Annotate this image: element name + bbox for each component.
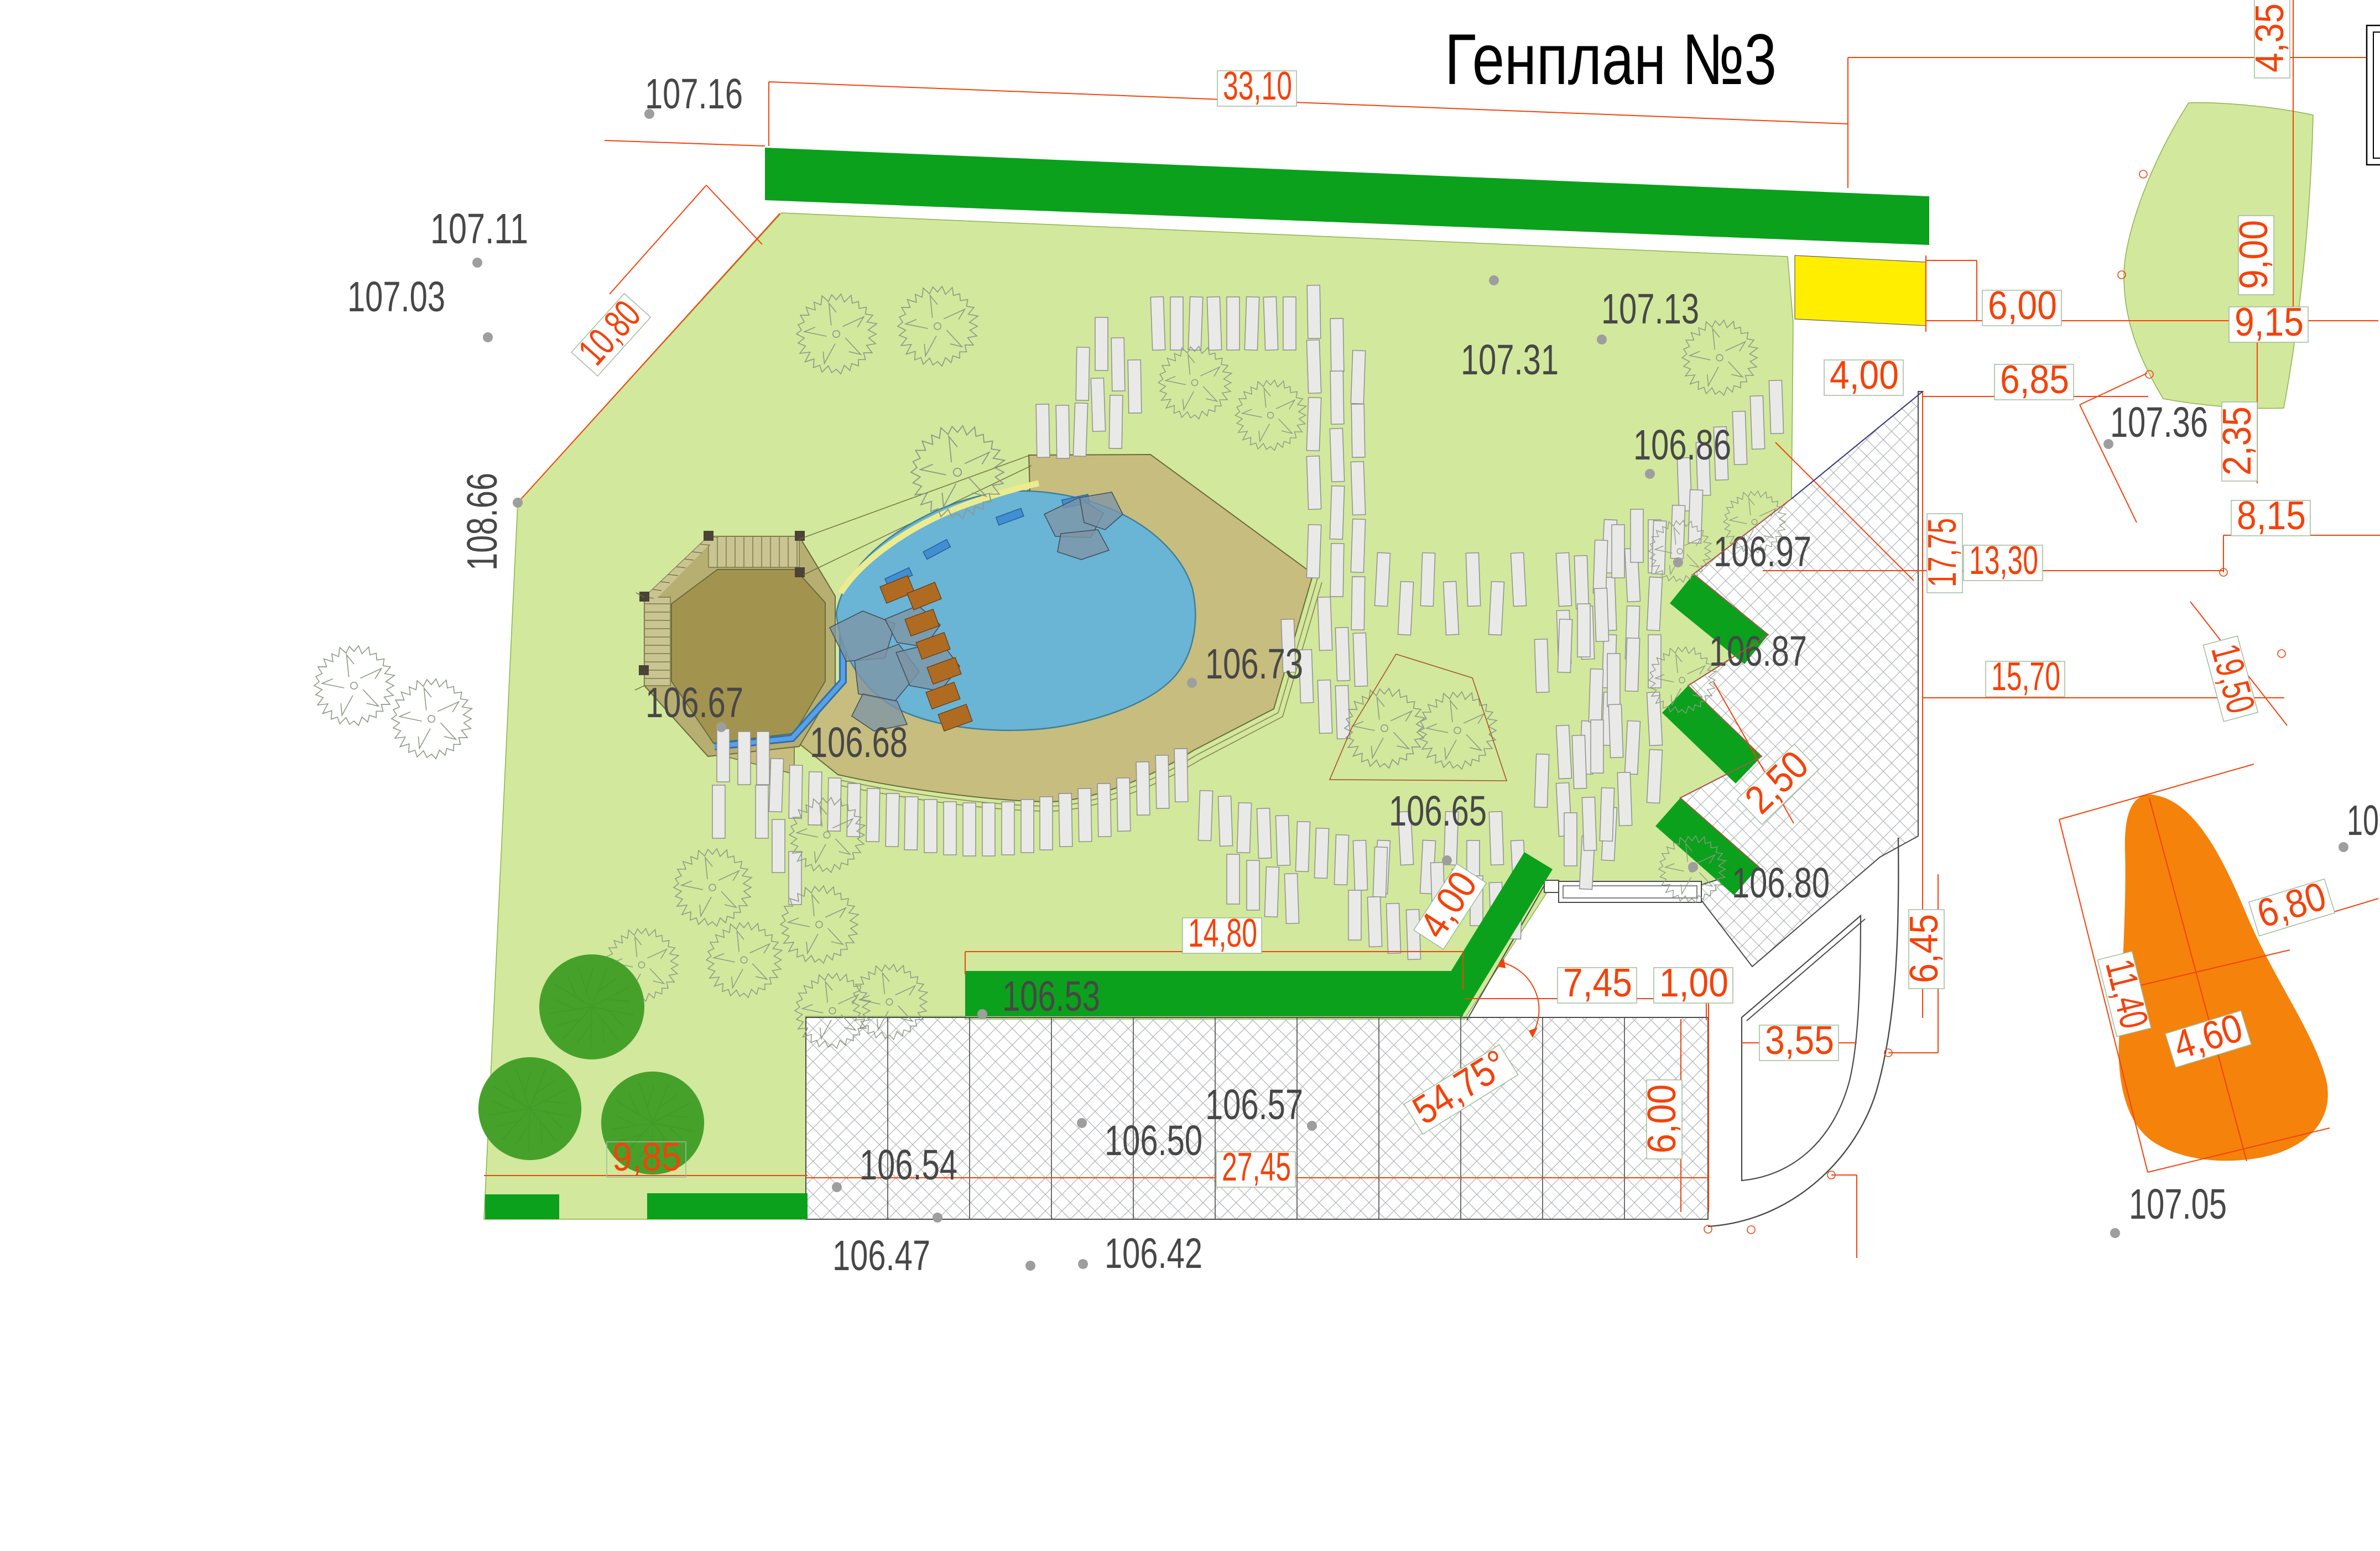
svg-text:6,00: 6,00 [1640,1084,1684,1153]
svg-text:7,45: 7,45 [1563,961,1632,1005]
svg-text:106.68: 106.68 [810,719,908,766]
svg-text:106.53: 106.53 [1002,973,1100,1020]
svg-text:4,00: 4,00 [1830,353,1899,398]
svg-text:106.42: 106.42 [1105,1230,1202,1277]
svg-text:6,45: 6,45 [1902,914,1946,983]
svg-text:9,00: 9,00 [2232,220,2276,289]
svg-text:1,00: 1,00 [1659,961,1728,1005]
svg-text:108.66: 108.66 [459,473,506,571]
svg-text:106.80: 106.80 [1732,859,1830,907]
svg-text:107.11: 107.11 [430,205,528,253]
svg-text:106.97: 106.97 [1714,528,1811,576]
svg-text:106.47: 106.47 [832,1232,930,1280]
svg-text:13,30: 13,30 [1969,539,2038,583]
svg-text:9,85: 9,85 [612,1135,681,1179]
svg-text:9,15: 9,15 [2235,300,2304,344]
svg-text:106.73: 106.73 [1205,640,1303,688]
svg-text:106.86: 106.86 [1633,421,1731,469]
svg-text:106.87: 106.87 [1709,628,1807,675]
svg-text:10: 10 [2347,797,2379,844]
svg-text:Генплан №3: Генплан №3 [1445,19,1777,100]
svg-text:8,15: 8,15 [2237,494,2306,538]
svg-text:6,00: 6,00 [1988,284,2057,328]
svg-text:14,80: 14,80 [1188,911,1257,955]
svg-text:107.13: 107.13 [1601,285,1699,333]
svg-text:107.36: 107.36 [2110,399,2208,446]
svg-text:106.50: 106.50 [1105,1117,1202,1164]
svg-text:106.54: 106.54 [860,1141,957,1189]
svg-text:107.16: 107.16 [645,70,743,118]
svg-text:15,70: 15,70 [1991,655,2060,699]
svg-text:106.67: 106.67 [645,679,743,727]
svg-text:106.57: 106.57 [1205,1081,1303,1129]
svg-text:3,55: 3,55 [1765,1019,1834,1063]
svg-text:107.31: 107.31 [1461,336,1559,384]
svg-text:4,35: 4,35 [2248,3,2292,72]
svg-text:107.03: 107.03 [347,273,445,321]
svg-text:2,35: 2,35 [2215,406,2259,476]
svg-text:33,10: 33,10 [1223,64,1292,108]
svg-text:106.65: 106.65 [1389,787,1487,835]
svg-text:6,85: 6,85 [2000,358,2069,402]
svg-text:107.05: 107.05 [2129,1181,2227,1228]
svg-text:17,75: 17,75 [1920,518,1965,587]
svg-text:27,45: 27,45 [1222,1145,1291,1189]
